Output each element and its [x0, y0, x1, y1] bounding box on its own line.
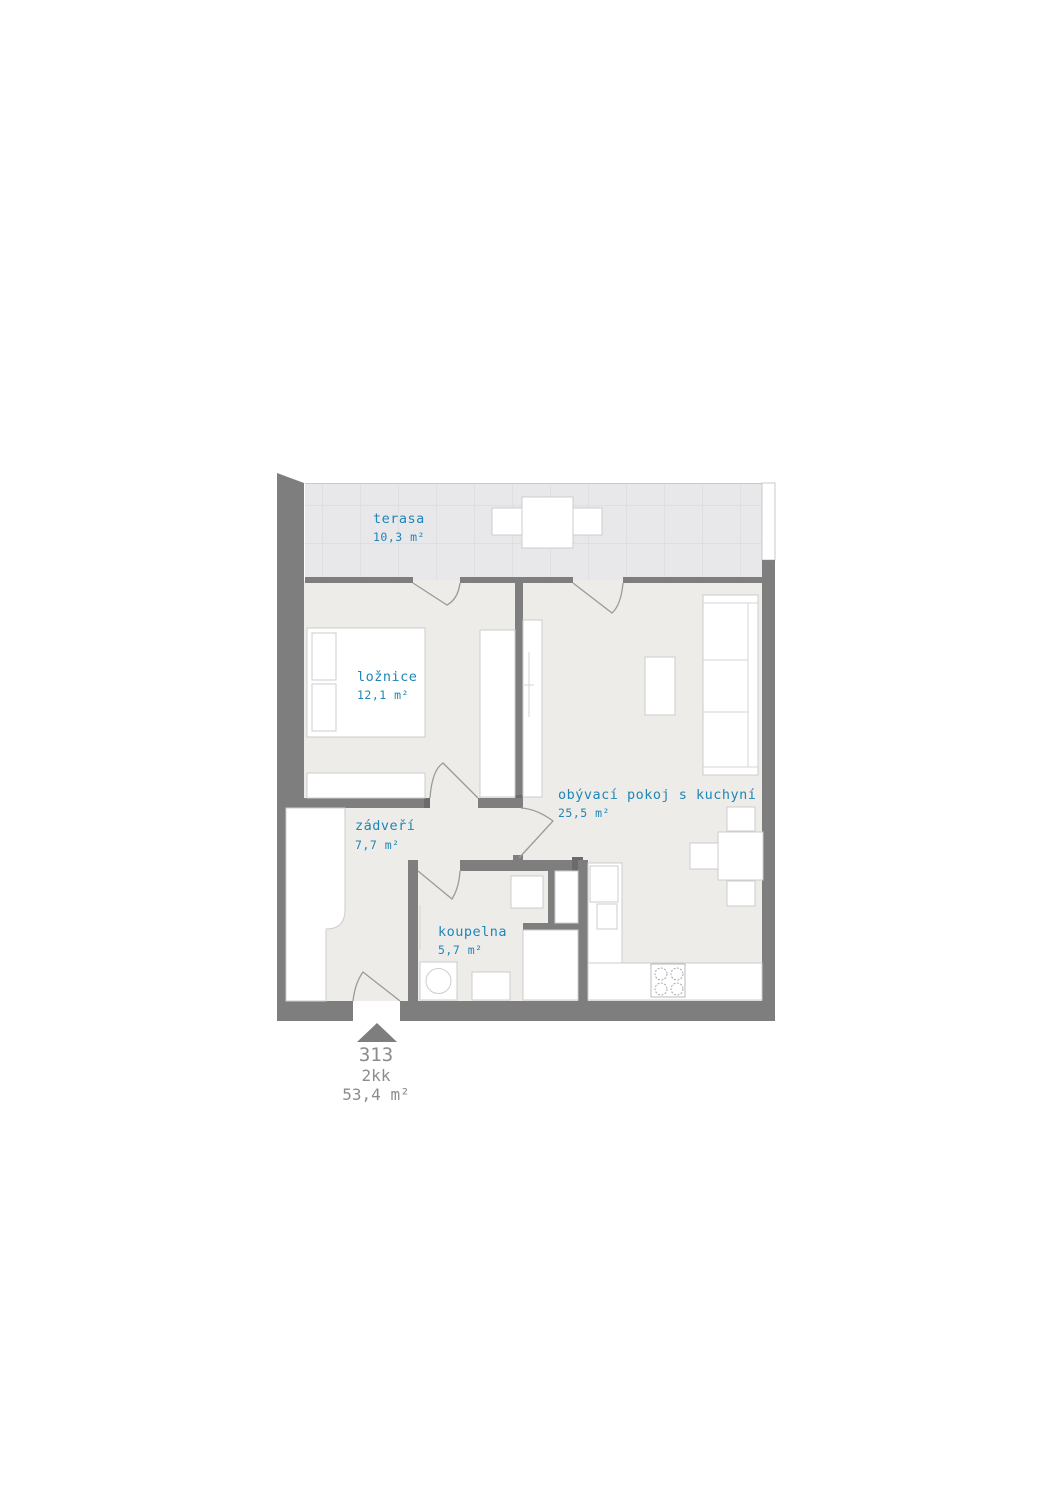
dining-chair-top — [727, 807, 755, 831]
sofa — [703, 595, 758, 775]
wall-bottom-left — [277, 1001, 353, 1021]
bathroom-sink — [472, 972, 510, 1000]
wall-wc-stub — [548, 871, 555, 923]
coffee-table — [645, 657, 675, 715]
wall-bedroom-hall-right — [478, 798, 523, 808]
toilet — [511, 876, 543, 908]
tv-cabinet — [523, 620, 542, 797]
room-label-obyvaci: obývací pokoj s kuchyní — [558, 787, 756, 803]
room-area-koupelna: 5,7 m² — [438, 943, 483, 957]
room-area-loznice: 12,1 m² — [357, 688, 409, 702]
floor-plan: terasa 10,3 m² ložnice 12,1 m² zádveří 7… — [0, 0, 1058, 1497]
room-label-koupelna: koupelna — [438, 924, 507, 940]
wall-bathroom-right — [578, 860, 588, 1001]
wall-hall-door-stub — [513, 855, 523, 871]
wall-right — [762, 560, 775, 1021]
wall-facade-right — [623, 577, 762, 583]
wall-bedroom-hall-left — [304, 798, 430, 808]
dining-table — [718, 832, 763, 880]
wall-bedroom-living-divider — [515, 577, 523, 807]
floor-plan-page: terasa 10,3 m² ložnice 12,1 m² zádveří 7… — [0, 0, 1058, 1497]
stove-burner-1 — [655, 968, 667, 980]
unit-info: 313 2kk 53,4 m² — [342, 1023, 409, 1104]
stove-burner-4 — [671, 983, 683, 995]
wall-facade-left — [305, 577, 413, 583]
terrace-chair-left — [492, 508, 522, 535]
unit-number: 313 — [359, 1044, 393, 1066]
terrace-table — [522, 497, 573, 548]
wall-shower-partition — [523, 923, 578, 930]
dining-chair-bottom — [727, 881, 755, 906]
stove-burner-2 — [671, 968, 683, 980]
room-label-terasa: terasa — [373, 511, 425, 527]
wall-bottom-right — [400, 1001, 775, 1021]
dining-chair-left — [690, 843, 718, 869]
unit-layout: 2kk — [362, 1066, 391, 1085]
kitchen-fridge — [590, 866, 618, 902]
wall-bathroom-left — [408, 860, 418, 1001]
wall-bedroom-door-jamb — [424, 798, 430, 808]
installation-shaft — [555, 871, 578, 923]
bed-pillow-bottom — [312, 684, 336, 731]
room-label-zadveri: zádveří — [355, 818, 415, 834]
room-area-obyvaci: 25,5 m² — [558, 806, 610, 820]
entrance-threshold — [353, 1001, 400, 1021]
bedroom-sideboard — [307, 773, 425, 798]
terrace-railing — [762, 483, 775, 560]
bed-pillow-top — [312, 633, 336, 680]
kitchen-sink — [597, 904, 617, 929]
entrance-arrow-icon — [357, 1023, 397, 1042]
unit-total-area: 53,4 m² — [342, 1085, 409, 1104]
shower — [523, 930, 578, 1000]
room-label-loznice: ložnice — [357, 669, 417, 685]
room-area-terasa: 10,3 m² — [373, 530, 425, 544]
stove-burner-3 — [655, 983, 667, 995]
terrace-chair-right — [573, 508, 602, 535]
room-area-zadveri: 7,7 m² — [355, 838, 400, 852]
bedroom-wardrobe — [480, 630, 515, 797]
